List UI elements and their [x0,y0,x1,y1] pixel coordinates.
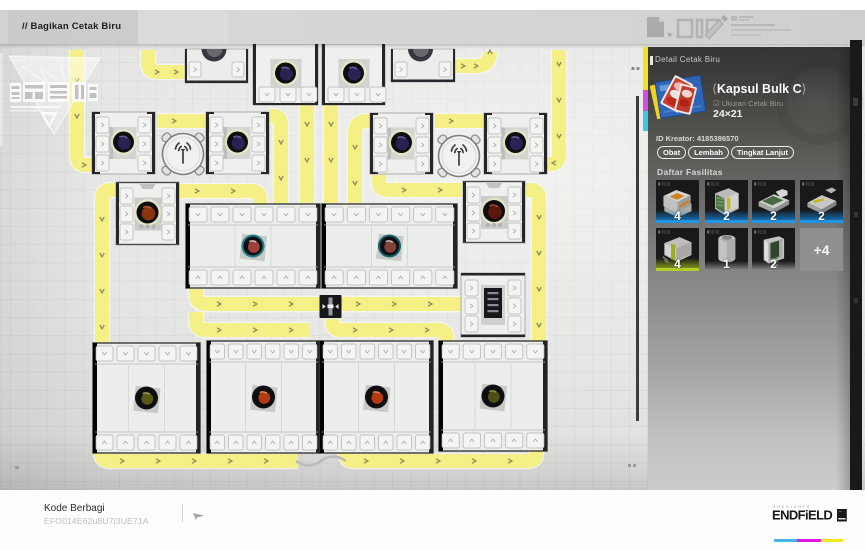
svg-text:ENDFiELD: ENDFiELD [772,508,832,523]
